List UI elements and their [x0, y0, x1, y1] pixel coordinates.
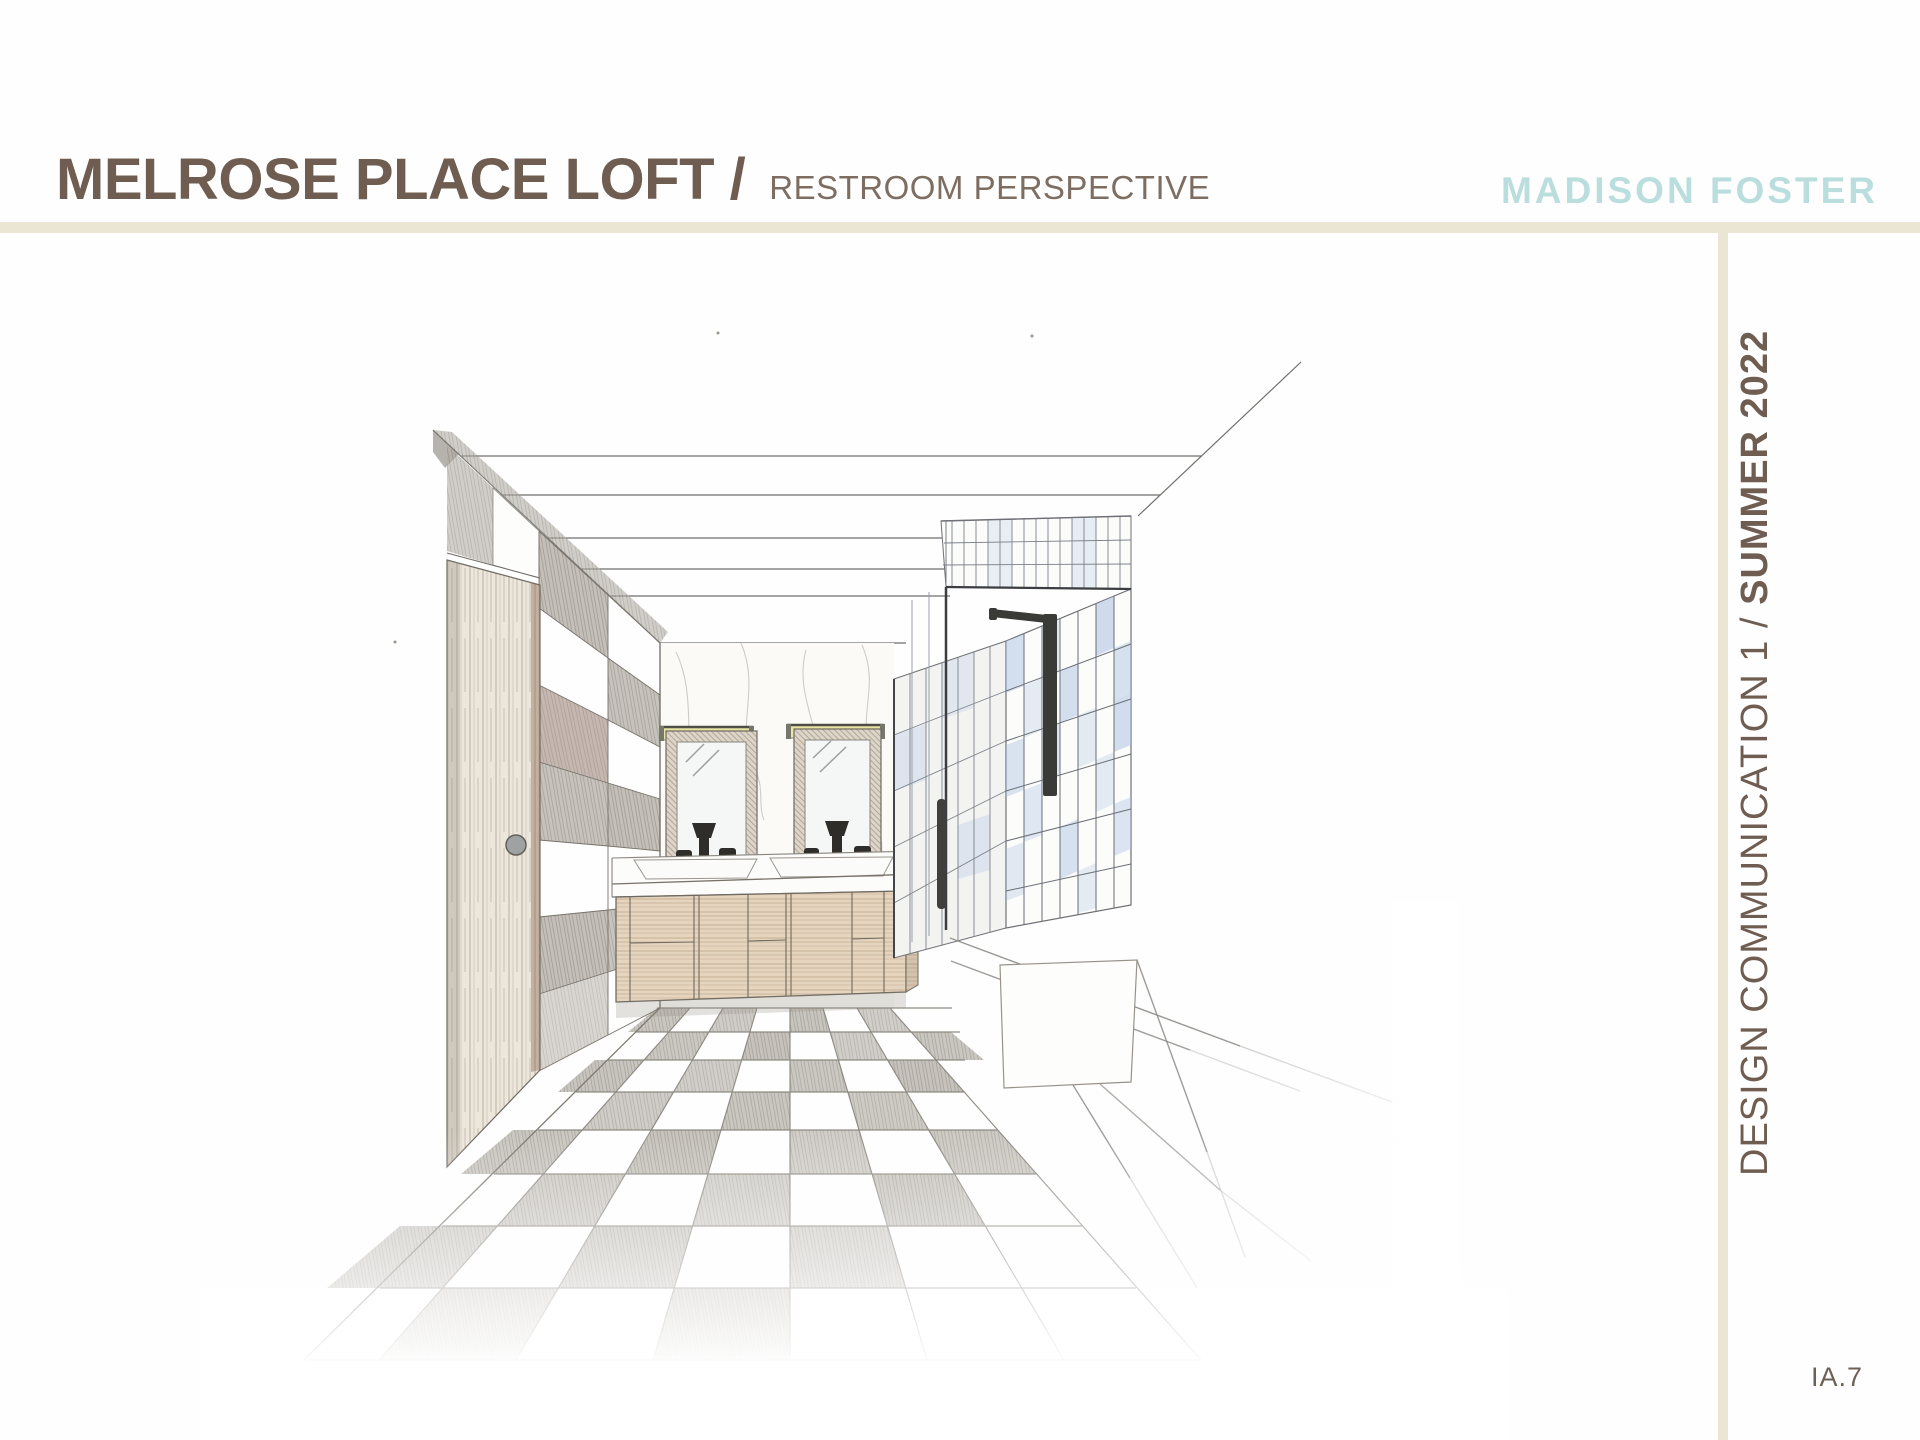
shower-enclosure — [894, 516, 1131, 958]
portfolio-page: MELROSE PLACE LOFT / RESTROOM PERSPECTIV… — [0, 0, 1920, 1440]
door-knob — [506, 835, 526, 855]
restroom-perspective-sketch — [0, 0, 1920, 1440]
door — [447, 553, 540, 1167]
vanity-counter — [612, 851, 918, 897]
vanity-cabinet — [616, 888, 918, 1018]
shower-door-handle — [937, 799, 946, 909]
